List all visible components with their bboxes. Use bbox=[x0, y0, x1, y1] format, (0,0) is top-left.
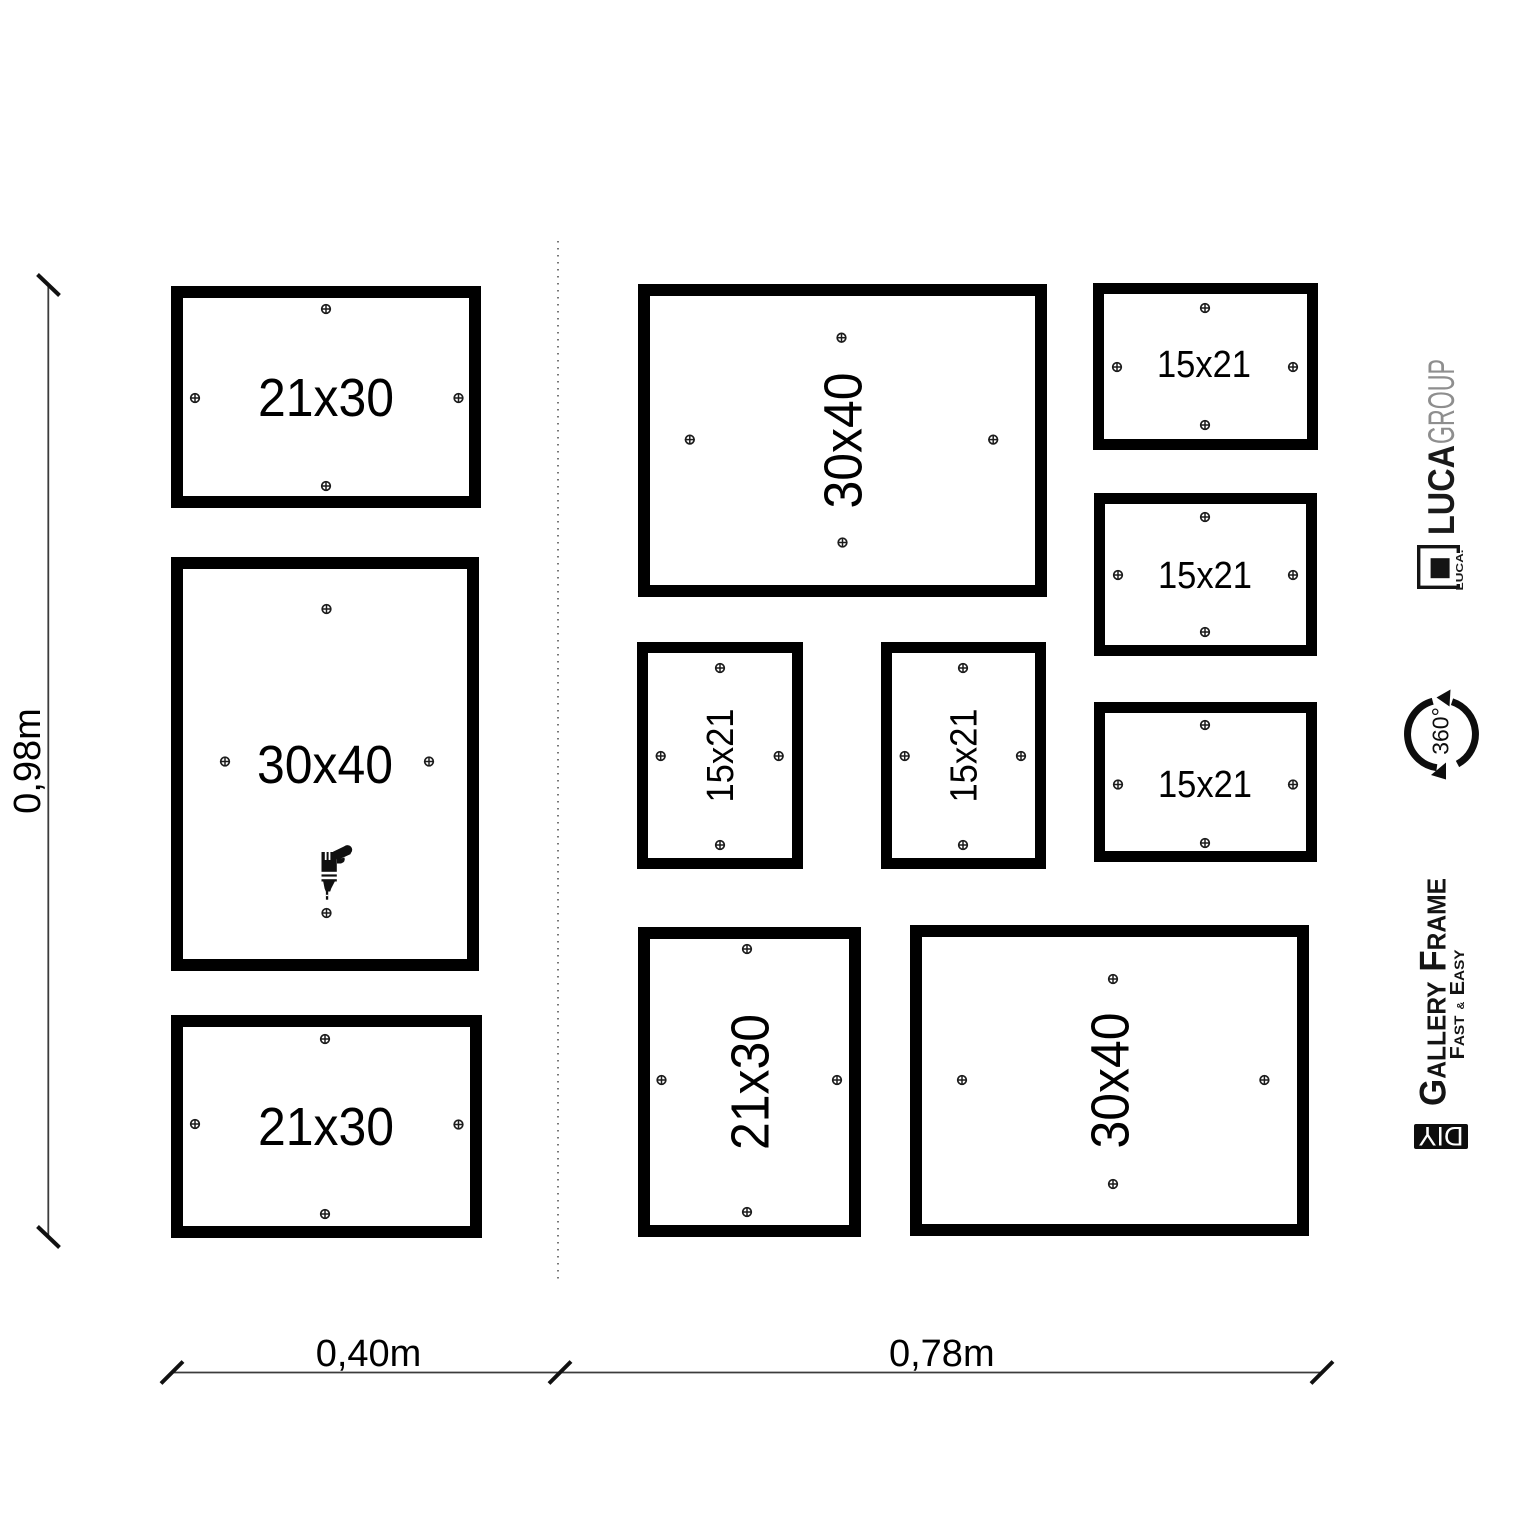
svg-text:0,40m: 0,40m bbox=[316, 1333, 422, 1375]
svg-text:0,78m: 0,78m bbox=[889, 1333, 995, 1375]
svg-text:15x21: 15x21 bbox=[1158, 555, 1252, 597]
svg-text:21x30: 21x30 bbox=[258, 368, 394, 428]
svg-text:360°: 360° bbox=[1428, 707, 1454, 755]
svg-text:15x21: 15x21 bbox=[700, 709, 742, 803]
svg-text:30x40: 30x40 bbox=[257, 735, 393, 795]
svg-text:LUCA.: LUCA. bbox=[1455, 549, 1466, 590]
svg-text:0,98m: 0,98m bbox=[7, 708, 49, 814]
svg-text:15x21: 15x21 bbox=[1157, 344, 1251, 386]
svg-text:GROUP: GROUP bbox=[1421, 359, 1462, 444]
svg-text:15x21: 15x21 bbox=[1158, 764, 1252, 806]
svg-text:21x30: 21x30 bbox=[721, 1014, 781, 1150]
svg-text:LUCA: LUCA bbox=[1421, 445, 1462, 535]
svg-text:DIY: DIY bbox=[1418, 1121, 1463, 1151]
svg-text:21x30: 21x30 bbox=[258, 1097, 394, 1157]
svg-text:15x21: 15x21 bbox=[944, 709, 986, 803]
svg-text:30x40: 30x40 bbox=[1081, 1013, 1141, 1149]
svg-text:30x40: 30x40 bbox=[814, 373, 874, 509]
